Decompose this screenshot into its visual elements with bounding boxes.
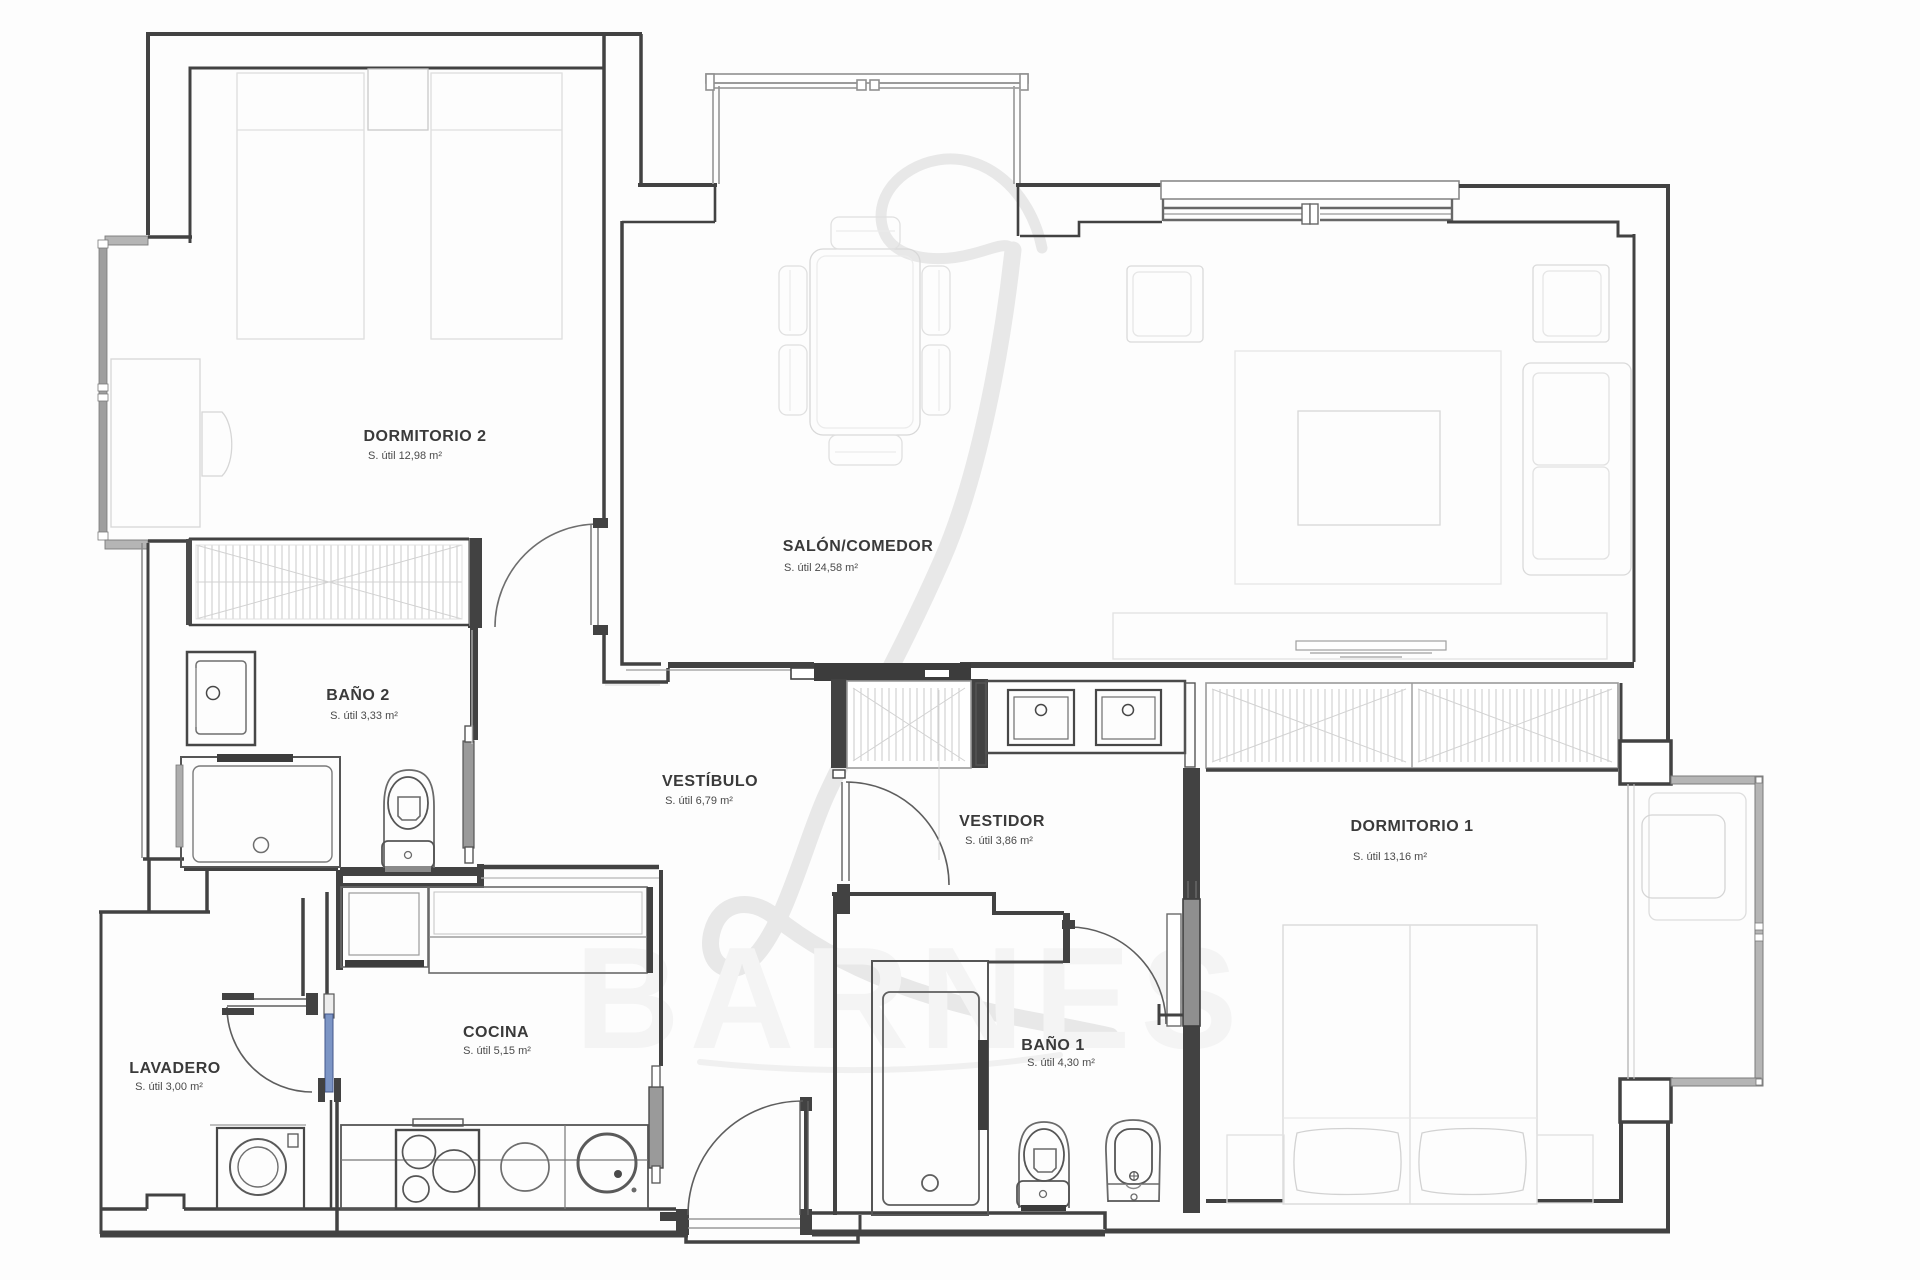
svg-text:BARNES: BARNES [575, 917, 1247, 1079]
svg-text:S. útil 5,15 m²: S. útil 5,15 m² [463, 1045, 531, 1057]
svg-text:S. útil 3,86 m²: S. útil 3,86 m² [965, 835, 1033, 847]
svg-text:DORMITORIO 2: DORMITORIO 2 [363, 428, 486, 445]
svg-text:COCINA: COCINA [463, 1024, 529, 1041]
svg-text:VESTÍBULO: VESTÍBULO [662, 771, 758, 790]
svg-text:S. útil 4,30 m²: S. útil 4,30 m² [1027, 1057, 1095, 1069]
svg-text:S. útil 12,98 m²: S. útil 12,98 m² [368, 450, 442, 462]
svg-text:S. útil 3,00 m²: S. útil 3,00 m² [135, 1081, 203, 1093]
svg-text:DORMITORIO 1: DORMITORIO 1 [1350, 818, 1473, 835]
svg-text:S. útil 3,33 m²: S. útil 3,33 m² [330, 710, 398, 722]
svg-text:BAÑO 2: BAÑO 2 [326, 684, 389, 704]
svg-text:S. útil 24,58 m²: S. útil 24,58 m² [784, 562, 858, 574]
svg-text:S. útil 13,16 m²: S. útil 13,16 m² [1353, 851, 1427, 863]
svg-text:LAVADERO: LAVADERO [129, 1060, 220, 1077]
svg-text:BAÑO 1: BAÑO 1 [1021, 1034, 1084, 1054]
svg-text:S. útil 6,79 m²: S. útil 6,79 m² [665, 795, 733, 807]
svg-text:SALÓN/COMEDOR: SALÓN/COMEDOR [783, 536, 934, 555]
svg-text:VESTIDOR: VESTIDOR [959, 813, 1045, 830]
